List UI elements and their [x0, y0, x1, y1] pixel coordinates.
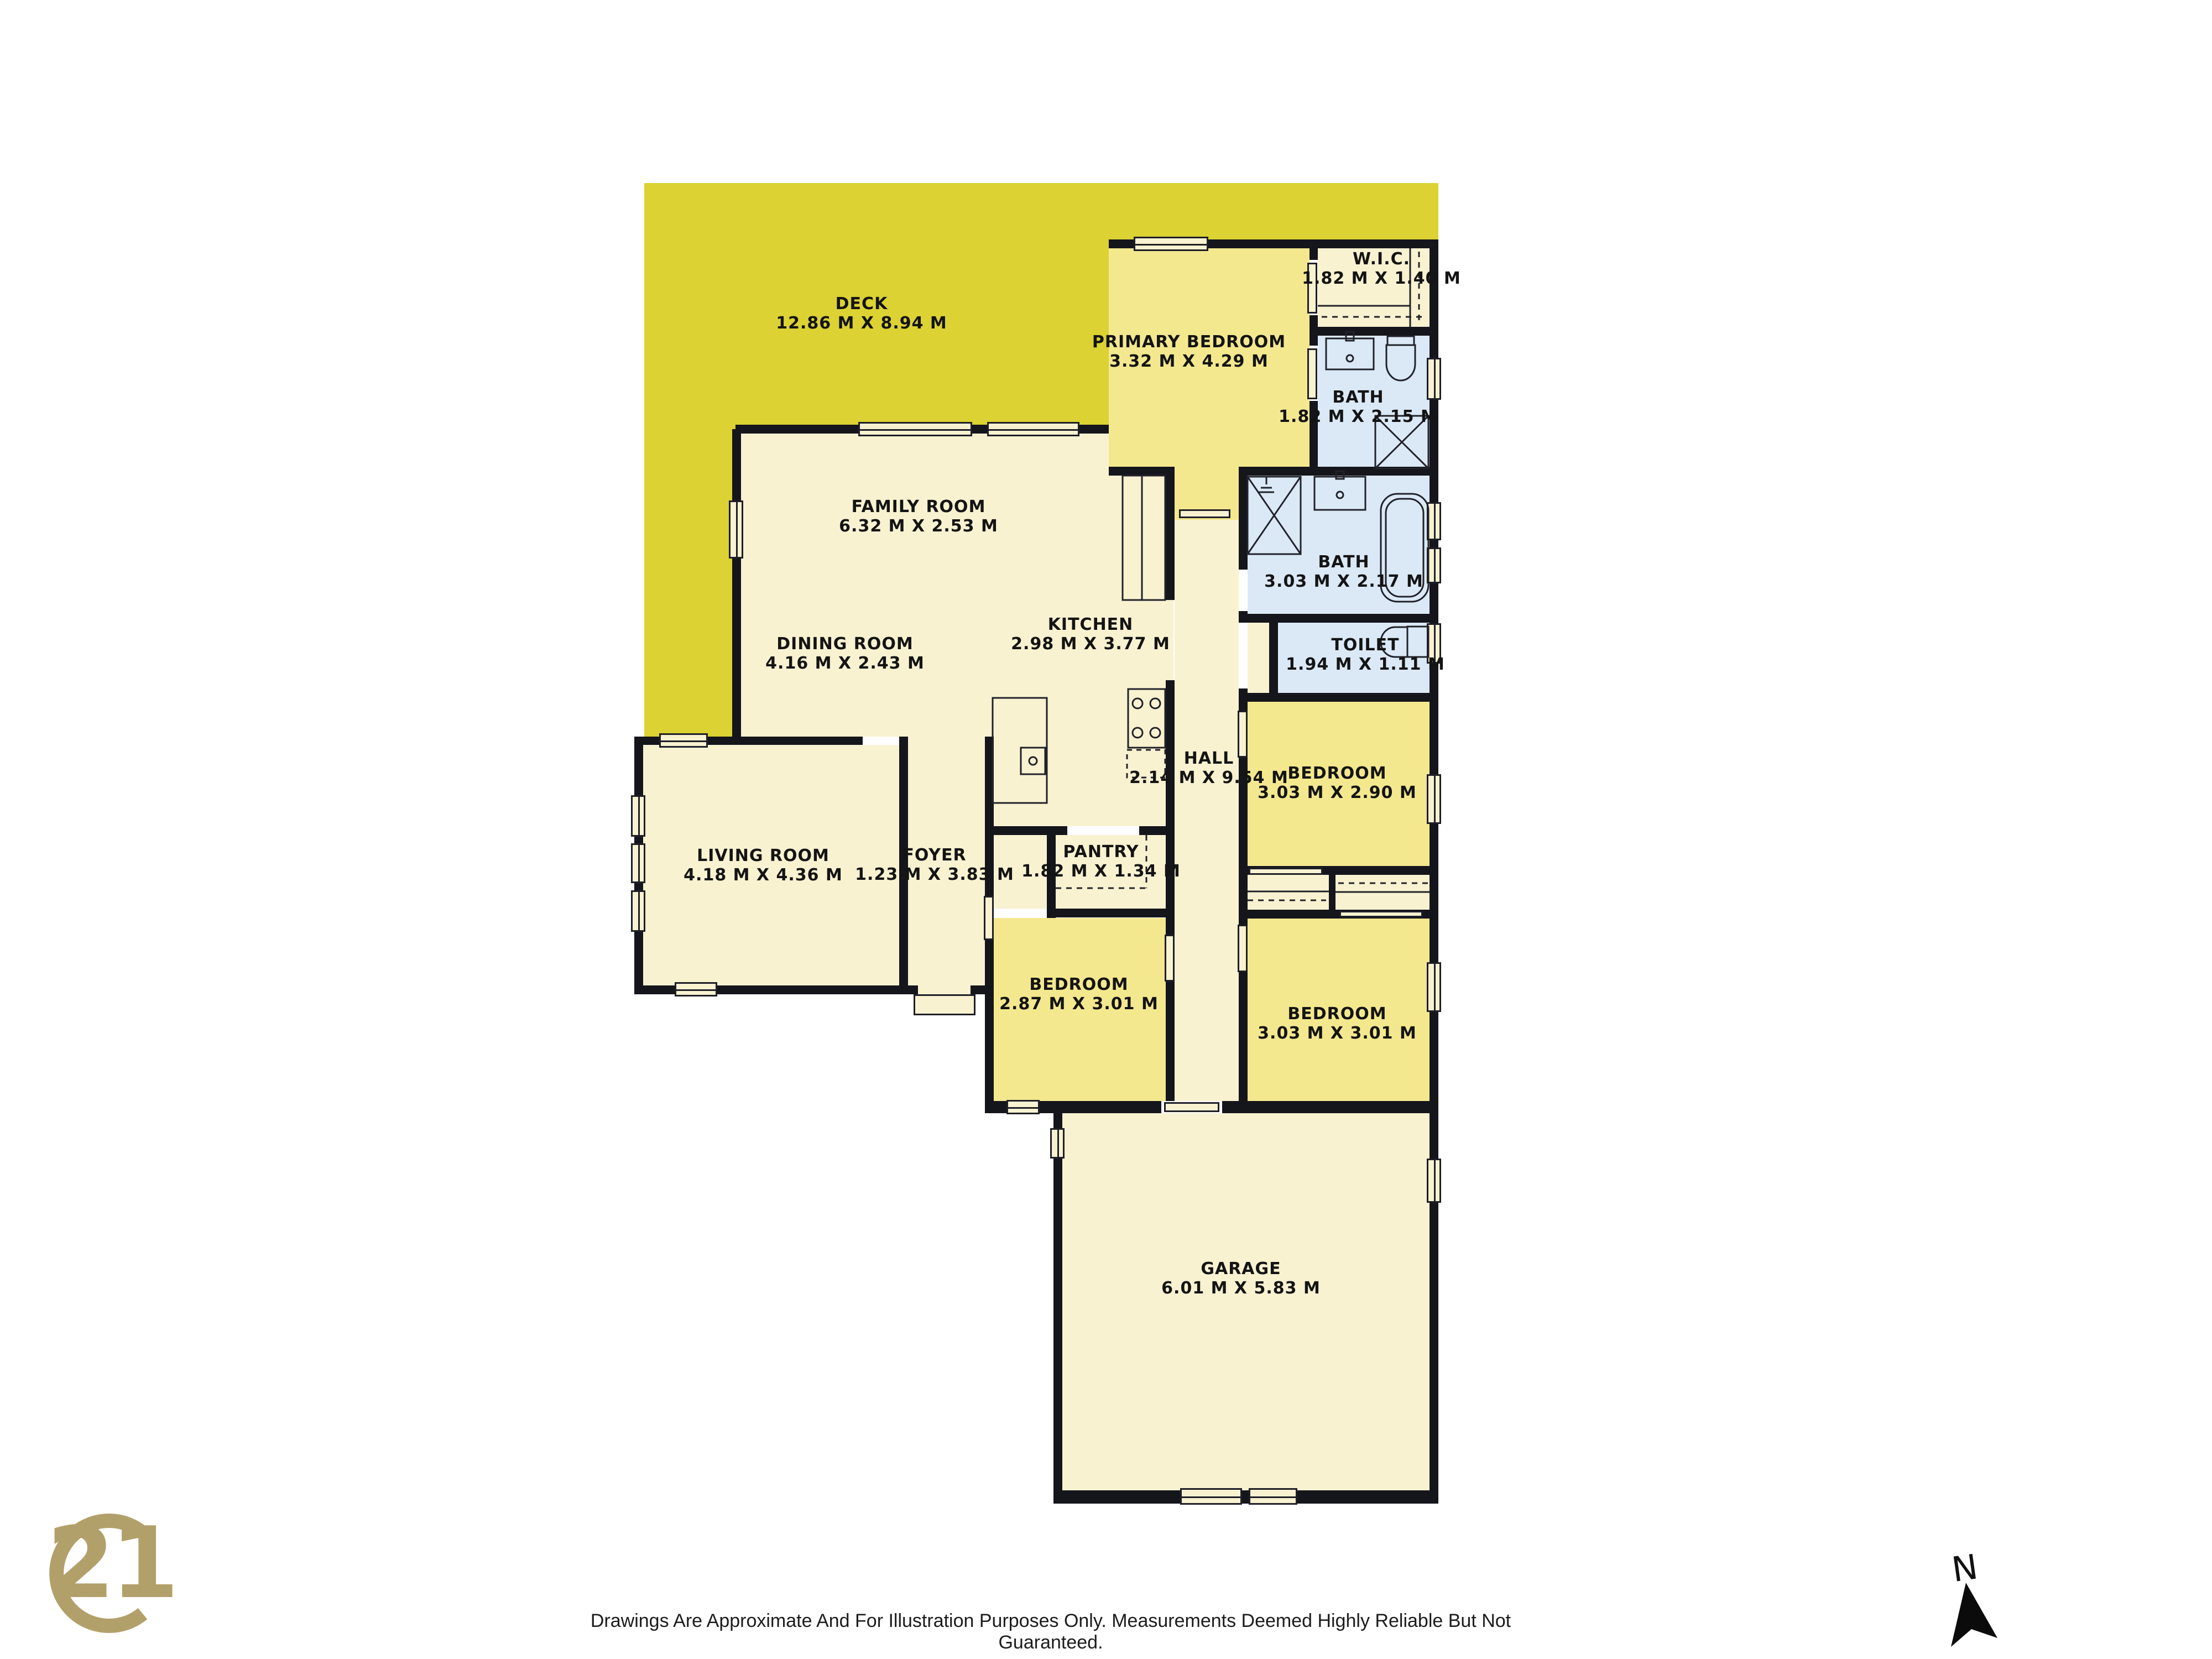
room-name: DINING ROOM: [765, 634, 925, 654]
room-dims: 3.03 M X 2.90 M: [1258, 783, 1417, 802]
sink-drain-icon: [1337, 492, 1343, 498]
room-label-deck: DECK 12.86 M X 8.94 M: [776, 294, 947, 333]
shower-head-icon: [1259, 477, 1274, 492]
room-label-foyer: FOYER 1.23 M X 3.83 M: [855, 846, 1014, 884]
logo-number: 21: [46, 1506, 175, 1620]
room-label-dining: DINING ROOM 4.16 M X 2.43 M: [765, 634, 925, 673]
room-dims: 1.82 M X 1.40 M: [1302, 269, 1461, 288]
room-name: FAMILY ROOM: [839, 497, 998, 517]
room-name: BATH: [1279, 388, 1438, 407]
room-dims: 6.01 M X 5.83 M: [1161, 1279, 1321, 1298]
room-dims: 4.16 M X 2.43 M: [765, 654, 925, 673]
room-name: BEDROOM: [1258, 764, 1417, 783]
room-label-bedroom-mid: BEDROOM 2.87 M X 3.01 M: [999, 975, 1159, 1014]
north-label: N: [1949, 1546, 1980, 1590]
room-name: LIVING ROOM: [684, 846, 843, 865]
room-name: PANTRY: [1021, 842, 1181, 862]
burner-icon: [1133, 698, 1142, 708]
room-dims: 1.94 M X 1.11 M: [1286, 655, 1445, 674]
disclaimer-text: Drawings Are Approximate And For Illustr…: [556, 1610, 1546, 1653]
room-name: DECK: [776, 294, 947, 314]
room-label-toilet: TOILET 1.94 M X 1.11 M: [1286, 635, 1445, 674]
room-dims: 1.82 M X 2.15 M: [1279, 407, 1438, 426]
kitchen-island: [993, 698, 1047, 803]
room-name: GARAGE: [1161, 1259, 1321, 1279]
burner-icon: [1150, 728, 1160, 738]
room-label-bedroom4: BEDROOM 3.03 M X 3.01 M: [1258, 1004, 1417, 1043]
sink-icon: [1314, 477, 1365, 510]
room-name: PRIMARY BEDROOM: [1092, 332, 1286, 352]
room-label-garage: GARAGE 6.01 M X 5.83 M: [1161, 1259, 1321, 1298]
closet-shelf: [1248, 891, 1430, 892]
room-label-ensuite-bath: BATH 1.82 M X 2.15 M: [1279, 388, 1438, 426]
room-label-living: LIVING ROOM 4.18 M X 4.36 M: [684, 846, 843, 885]
sink-drain-icon: [1029, 757, 1037, 765]
room-dims: 3.03 M X 2.17 M: [1264, 572, 1423, 591]
room-name: BEDROOM: [999, 975, 1159, 994]
room-name: KITCHEN: [1011, 615, 1170, 634]
room-dims: 2.98 M X 3.77 M: [1011, 634, 1170, 654]
logo-sm: SM: [156, 1589, 170, 1600]
century21-logo: 21 SM: [46, 1506, 175, 1626]
room-dims: 3.03 M X 3.01 M: [1258, 1024, 1417, 1043]
room-label-bath2: BATH 3.03 M X 2.17 M: [1264, 552, 1423, 591]
sink-faucet-icon: [1336, 471, 1344, 479]
sink-icon: [1326, 338, 1374, 369]
north-arrow: N: [1949, 1546, 1997, 1647]
room-dims: 6.32 M X 2.53 M: [839, 517, 998, 536]
room-name: FOYER: [855, 846, 1014, 865]
room-name: TOILET: [1286, 635, 1445, 655]
stove-icon: [1128, 689, 1165, 748]
room-name: W.I.C.: [1302, 249, 1461, 269]
room-label-primary-bedroom: PRIMARY BEDROOM 3.32 M X 4.29 M: [1092, 332, 1286, 371]
burner-icon: [1150, 698, 1160, 708]
room-label-pantry: PANTRY 1.82 M X 1.34 M: [1021, 842, 1181, 881]
shower-icon: [1248, 477, 1301, 554]
floor-plan: 21 SM N DECK 12.86 M X 8.94 M PRIMARY BE…: [0, 0, 2212, 1659]
north-arrow-icon: [1951, 1583, 1997, 1647]
toilet-icon: [1387, 336, 1414, 345]
room-label-bedroom3: BEDROOM 3.03 M X 2.90 M: [1258, 764, 1417, 802]
room-dims: 12.86 M X 8.94 M: [776, 314, 947, 333]
sink-faucet-icon: [1346, 332, 1354, 341]
room-dims: 2.87 M X 3.01 M: [999, 994, 1159, 1014]
room-dims: 1.23 M X 3.83 M: [855, 865, 1014, 884]
room-label-wic: W.I.C. 1.82 M X 1.40 M: [1302, 249, 1461, 288]
kitchen-counter: [1123, 476, 1165, 600]
room-name: BEDROOM: [1258, 1004, 1417, 1024]
room-dims: 1.82 M X 1.34 M: [1021, 862, 1181, 881]
sink-icon: [1021, 748, 1045, 774]
toilet-icon: [1386, 345, 1415, 380]
sink-drain-icon: [1347, 355, 1353, 362]
room-label-kitchen: KITCHEN 2.98 M X 3.77 M: [1011, 615, 1170, 654]
room-label-family: FAMILY ROOM 6.32 M X 2.53 M: [839, 497, 998, 536]
fixtures-layer: 21 SM N: [0, 0, 2212, 1659]
room-dims: 4.18 M X 4.36 M: [684, 865, 843, 885]
burner-icon: [1133, 728, 1142, 738]
room-name: BATH: [1264, 552, 1423, 572]
room-dims: 3.32 M X 4.29 M: [1092, 352, 1286, 371]
